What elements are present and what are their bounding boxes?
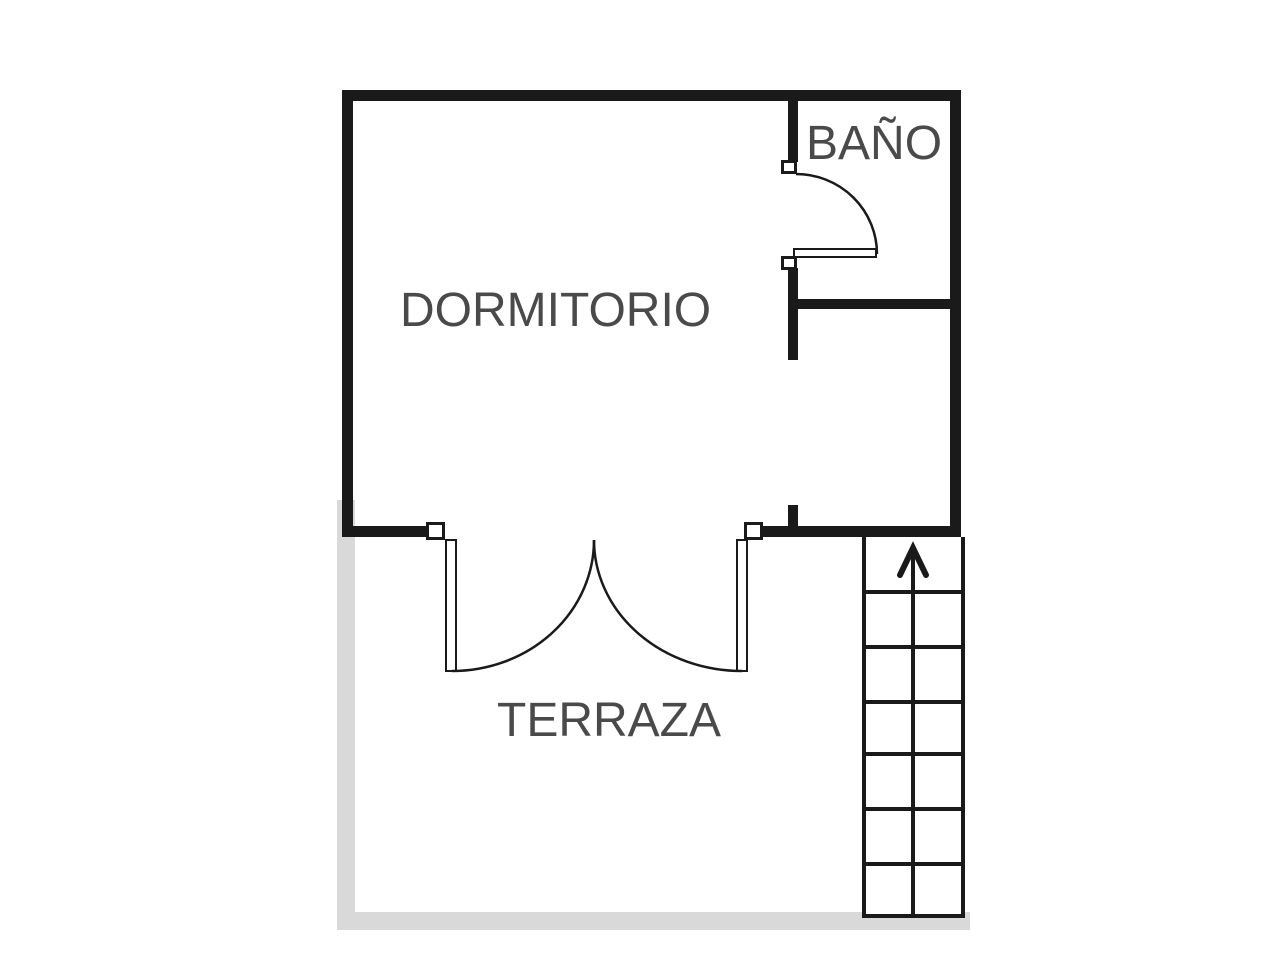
terrace-door-right-swing-arc (594, 540, 742, 671)
terraza-label: TERRAZA (497, 697, 721, 745)
swing-arcs-and-arrow-layer (0, 0, 1280, 960)
bathroom-door-swing-arc (796, 174, 877, 254)
bano-label: BAÑO (806, 120, 942, 168)
dormitorio-label: DORMITORIO (400, 287, 711, 335)
terrace-door-left-swing-arc (452, 540, 594, 671)
floor-plan: DORMITORIO BAÑO TERRAZA (0, 0, 1280, 960)
